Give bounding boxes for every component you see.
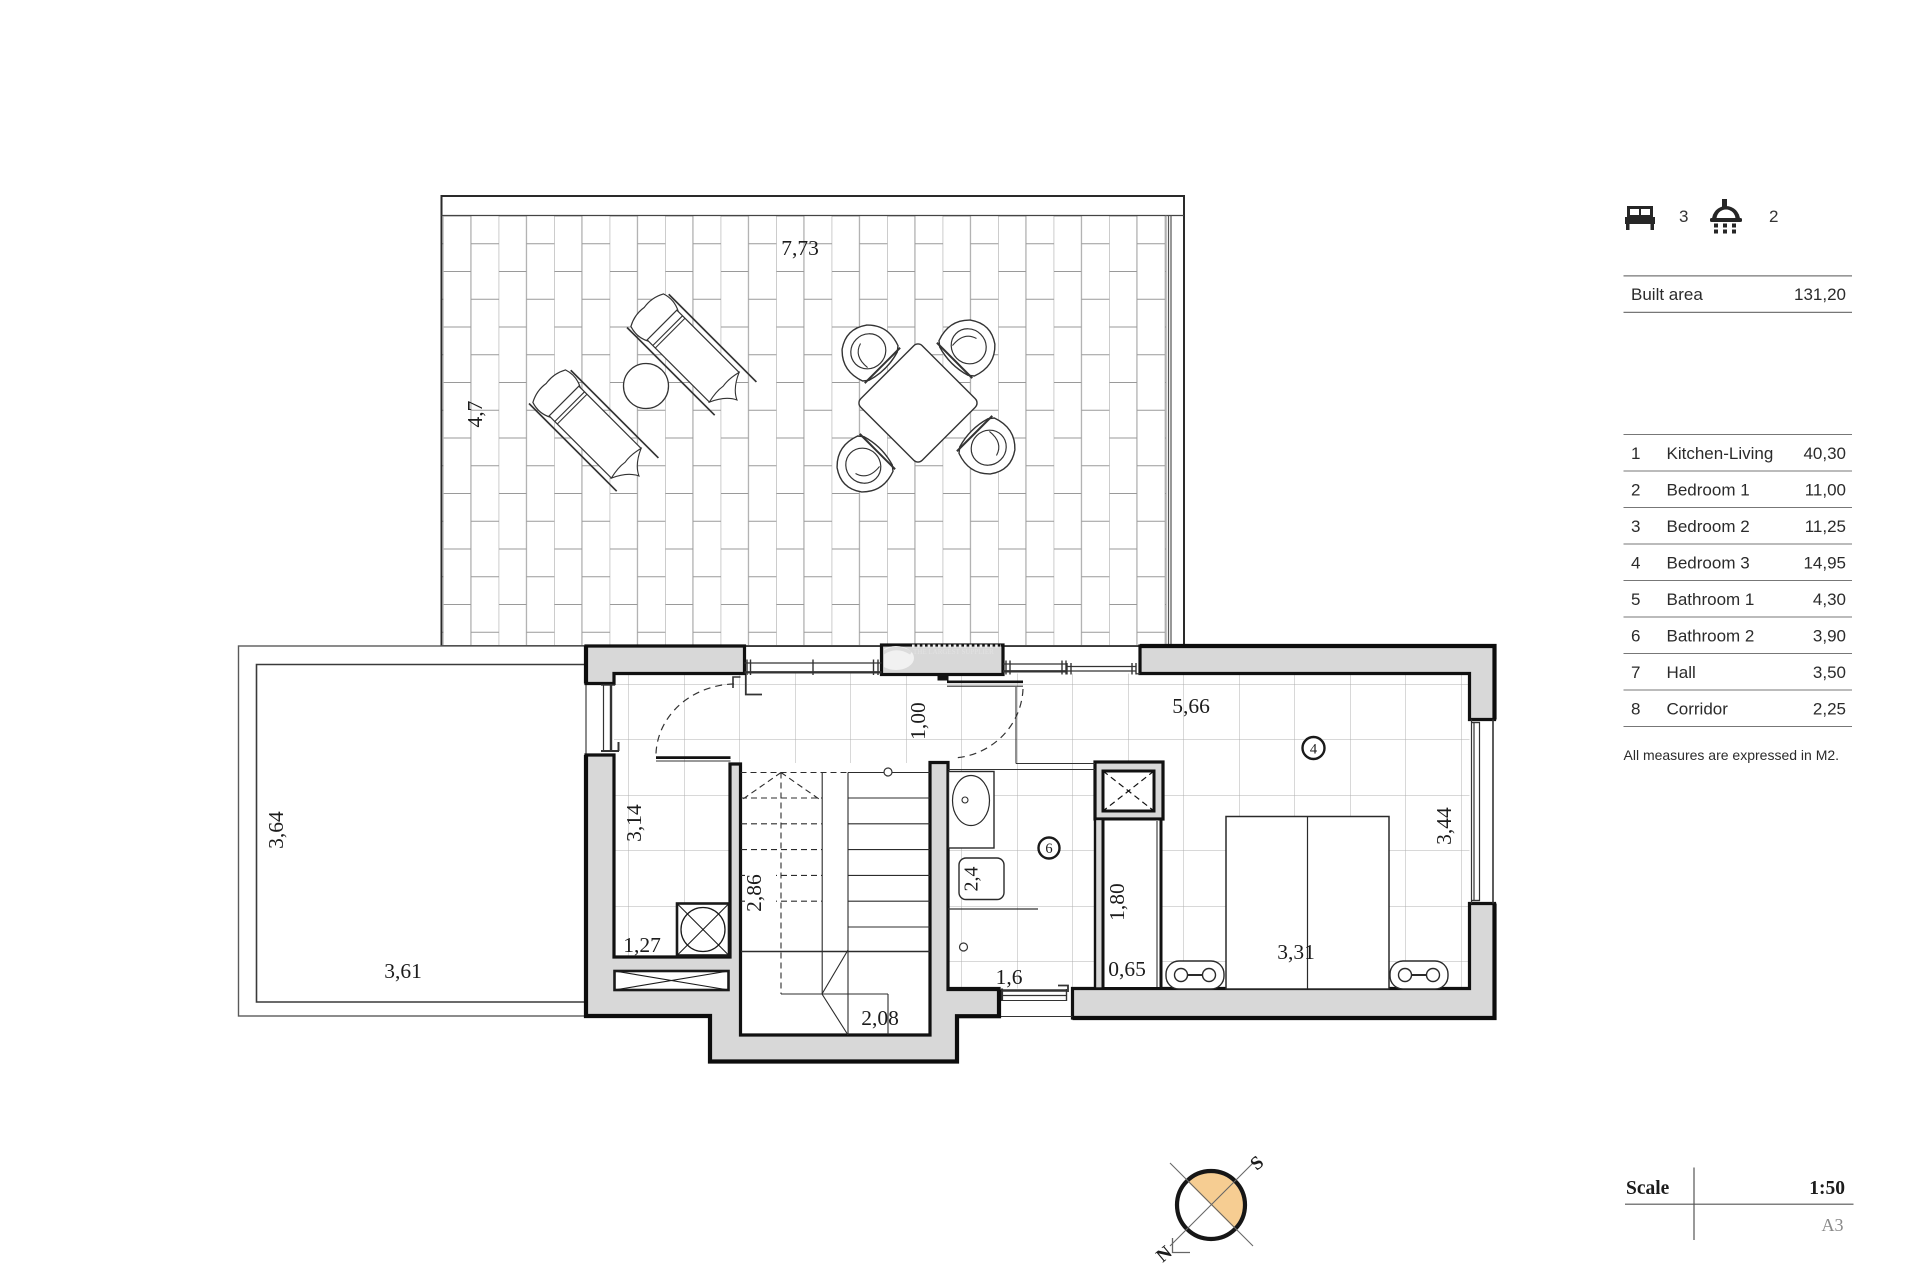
svg-text:All measures are expressed in: All measures are expressed in M2. (1624, 747, 1840, 763)
svg-text:3,90: 3,90 (1813, 627, 1846, 646)
svg-text:Bathroom 2: Bathroom 2 (1667, 627, 1755, 646)
svg-text:4: 4 (1631, 554, 1640, 573)
svg-text:Bathroom 1: Bathroom 1 (1667, 590, 1755, 609)
svg-text:Hall: Hall (1667, 663, 1696, 682)
svg-text:6: 6 (1631, 627, 1640, 646)
svg-text:3,61: 3,61 (384, 959, 422, 983)
svg-text:2,08: 2,08 (861, 1006, 899, 1030)
svg-text:1:50: 1:50 (1809, 1178, 1845, 1199)
svg-text:3,14: 3,14 (622, 804, 646, 842)
svg-text:1: 1 (1631, 444, 1640, 463)
svg-text:A3: A3 (1822, 1215, 1844, 1235)
svg-text:7: 7 (1631, 663, 1640, 682)
svg-text:3,50: 3,50 (1813, 663, 1846, 682)
svg-text:2,4: 2,4 (961, 867, 983, 892)
svg-text:0,65: 0,65 (1108, 957, 1146, 981)
svg-text:THE LARGEST SUPPLIER: THE LARGEST SUPPLIER (913, 648, 994, 656)
svg-text:4,7: 4,7 (463, 400, 487, 427)
svg-text:6: 6 (1045, 841, 1052, 857)
svg-text:131,20: 131,20 (1794, 285, 1846, 304)
svg-text:2,25: 2,25 (1813, 700, 1846, 719)
svg-text:2: 2 (1769, 207, 1778, 226)
svg-text:4: 4 (1310, 742, 1318, 758)
svg-text:3,44: 3,44 (1432, 807, 1456, 845)
svg-text:40,30: 40,30 (1803, 444, 1846, 463)
svg-text:5,66: 5,66 (1172, 694, 1210, 718)
svg-text:2: 2 (1631, 481, 1640, 500)
svg-text:1,27: 1,27 (623, 933, 661, 957)
svg-text:3: 3 (1631, 517, 1640, 536)
svg-text:Scale: Scale (1626, 1178, 1670, 1199)
svg-text:Bedroom 3: Bedroom 3 (1667, 554, 1750, 573)
svg-text:11,00: 11,00 (1805, 481, 1846, 500)
svg-text:1,6: 1,6 (996, 965, 1023, 989)
svg-text:Corridor: Corridor (1667, 700, 1729, 719)
svg-text:7,73: 7,73 (781, 236, 819, 260)
svg-text:1,00: 1,00 (906, 702, 930, 740)
svg-text:14,95: 14,95 (1803, 554, 1846, 573)
svg-text:5: 5 (1631, 590, 1640, 609)
svg-text:3,31: 3,31 (1277, 940, 1315, 964)
svg-text:2,86: 2,86 (742, 874, 766, 912)
svg-text:Bedroom 2: Bedroom 2 (1667, 517, 1750, 536)
svg-text:Built area: Built area (1631, 285, 1703, 304)
svg-text:Kitchen-Living: Kitchen-Living (1667, 444, 1774, 463)
svg-text:3,64: 3,64 (264, 811, 288, 849)
svg-text:3: 3 (1679, 207, 1688, 226)
svg-text:8: 8 (1631, 700, 1640, 719)
svg-text:4,30: 4,30 (1813, 590, 1846, 609)
svg-text:11,25: 11,25 (1805, 517, 1846, 536)
svg-text:Bedroom 1: Bedroom 1 (1667, 481, 1750, 500)
svg-text:1,80: 1,80 (1105, 883, 1129, 921)
